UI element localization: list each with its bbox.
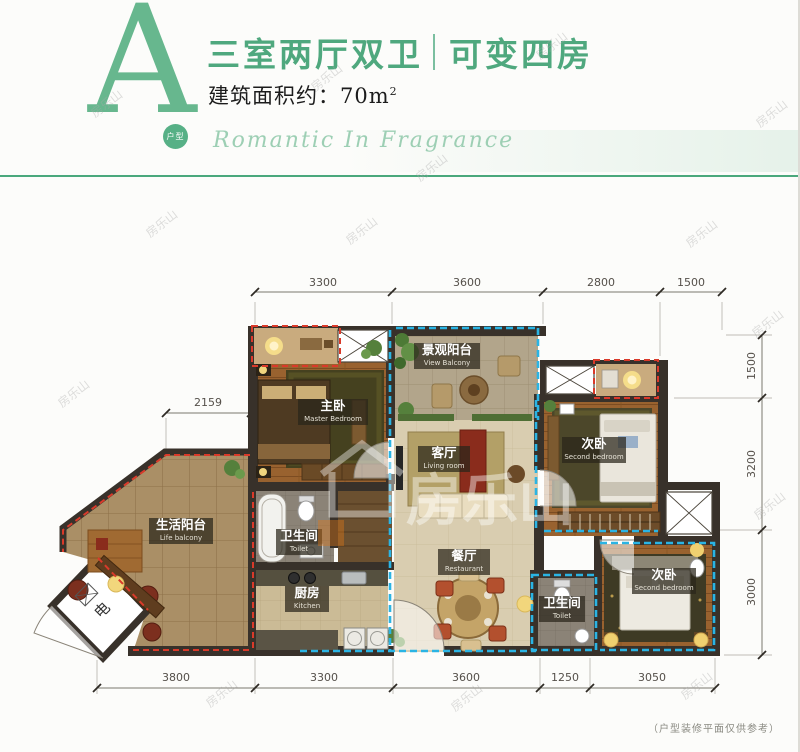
page: A 户型 三室两厅双卫 可变四房 建筑面积约：70m2 Romantic In … [0,0,800,752]
label-dining: 餐厅 Restaurant [438,548,490,575]
svg-text:房乐山: 房乐山 [413,150,451,184]
svg-text:卫生间: 卫生间 [280,528,318,543]
dim-right-1: 1500 [745,352,758,380]
label-toilet-top: 卫生间 Toilet [276,528,322,555]
svg-text:房乐山: 房乐山 [751,488,789,522]
svg-text:厨房: 厨房 [294,585,319,600]
dim-top-2: 3600 [453,276,481,289]
watermark-center-text: 房乐山 [406,469,574,534]
dim-bottom-1: 3800 [162,671,190,684]
svg-text:Toilet: Toilet [289,545,309,553]
svg-text:Life balcony: Life balcony [160,534,202,542]
svg-text:房乐山: 房乐山 [88,86,126,120]
label-view-balcony: 景观阳台 View Balcony [414,342,480,369]
label-toilet-bottom: 卫生间 Toilet [539,595,585,622]
svg-text:Second bedroom: Second bedroom [564,453,623,461]
svg-text:房乐山: 房乐山 [308,60,346,94]
svg-text:房乐山: 房乐山 [448,680,486,714]
svg-text:房乐山: 房乐山 [203,676,241,710]
closet-strip [338,490,392,564]
svg-text:次卧: 次卧 [581,436,607,451]
dimension-left: 2159 [162,396,255,452]
svg-text:Kitchen: Kitchen [294,602,320,610]
dim-right-2: 3200 [745,450,758,478]
label-bedroom-right: 次卧 Second bedroom [562,436,626,463]
svg-text:房乐山: 房乐山 [678,668,716,702]
svg-text:房乐山: 房乐山 [143,206,181,240]
svg-text:房乐山: 房乐山 [55,376,93,410]
label-master: 主卧 Master Bedroom [298,398,368,425]
dim-right-3: 3000 [745,578,758,606]
label-life-balcony: 生活阳台 Life balcony [149,517,213,544]
dim-top-4: 1500 [677,276,705,289]
floor-plan-svg: 3300 3600 2800 1500 1500 3200 3000 380 [0,0,800,752]
svg-text:Master Bedroom: Master Bedroom [304,415,362,423]
dim-bottom-4: 1250 [551,671,579,684]
reference-note: （户型装修平面仅供参考） [648,720,780,735]
dim-left-1: 2159 [194,396,222,409]
dim-bottom-5: 3050 [638,671,666,684]
svg-text:次卧: 次卧 [651,567,677,582]
label-living: 客厅 Living room [418,445,470,472]
svg-text:景观阳台: 景观阳台 [422,342,472,357]
svg-text:餐厅: 餐厅 [450,548,477,563]
svg-text:View Balcony: View Balcony [424,359,471,367]
svg-text:卫生间: 卫生间 [543,595,581,610]
svg-text:房乐山: 房乐山 [683,216,721,250]
svg-text:生活阳台: 生活阳台 [156,517,206,532]
svg-text:房乐山: 房乐山 [753,96,791,130]
svg-text:Second bedroom: Second bedroom [634,584,693,592]
label-bedroom-bottom: 次卧 Second bedroom [632,567,696,594]
svg-text:Toilet: Toilet [552,612,572,620]
label-kitchen: 厨房 Kitchen [285,585,329,612]
svg-text:主卧: 主卧 [320,398,346,413]
svg-text:房乐山: 房乐山 [343,213,381,247]
dim-top-3: 2800 [587,276,615,289]
dim-bottom-2: 3300 [310,671,338,684]
svg-text:Restaurant: Restaurant [445,565,484,573]
dim-top-1: 3300 [309,276,337,289]
dimensions-bottom: 3800 3300 3600 1250 3050 [93,658,719,694]
svg-text:客厅: 客厅 [430,445,457,460]
svg-text:房乐山: 房乐山 [533,28,571,62]
